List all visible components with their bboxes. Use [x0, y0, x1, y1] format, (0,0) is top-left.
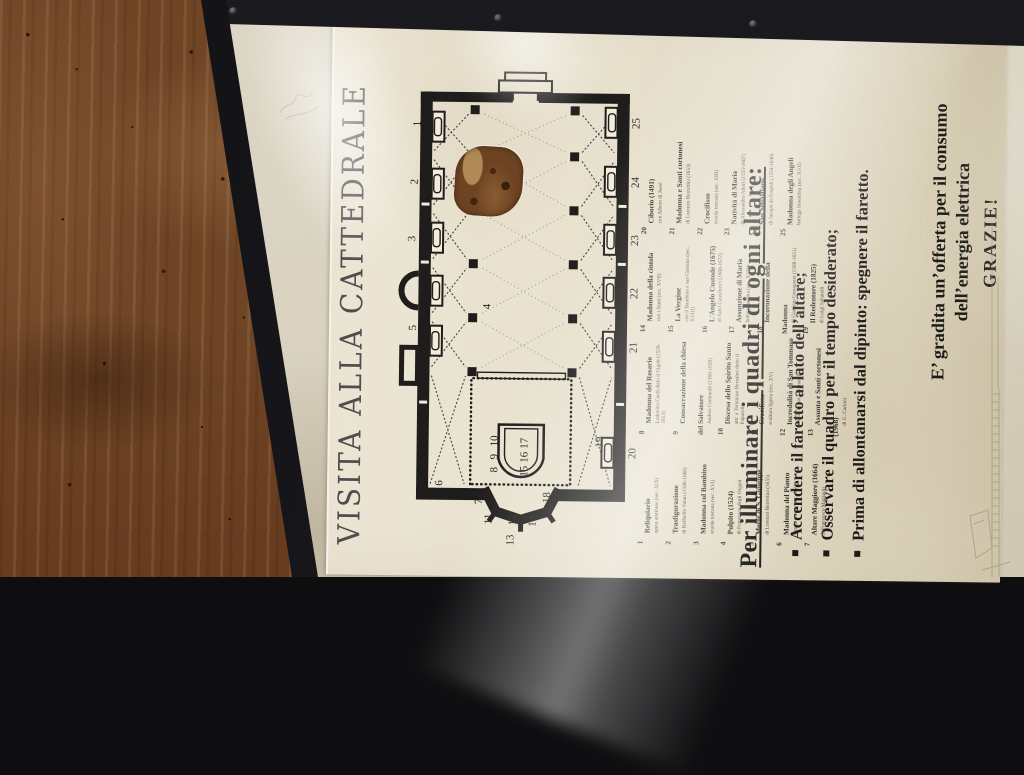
- plan-number-label: 16: [518, 451, 530, 462]
- bullet-square-icon: [854, 550, 860, 556]
- legend-item-title: La Vergine: [673, 287, 681, 321]
- plan-number-label: 6: [433, 480, 445, 486]
- legend-item-number: 12: [778, 424, 786, 435]
- legend-item-number: 2: [664, 533, 672, 544]
- legend-item-detail: Lodovico Cardi detto il Cigoli (1559-161…: [655, 334, 668, 423]
- instruction-bullet: Accendere il faretto al lato dell’altare…: [786, 168, 811, 556]
- plan-number-label: 14: [526, 515, 538, 526]
- plan-number-label: 1: [411, 120, 423, 126]
- legend-item-title: Consacrazione della chiesa del Salvatore: [678, 341, 704, 435]
- plan-number-label: 24: [629, 177, 641, 188]
- legend-item-title: Discesa dello Spirito Santo: [724, 342, 733, 424]
- instructions-heading: Per illuminare i quadri di ogni altare:: [736, 166, 768, 567]
- legend-item: 14Madonna della cintolacon i Santi (sec.…: [638, 236, 663, 332]
- legend-item: 9Consacrazione della chiesa del Salvator…: [671, 334, 714, 435]
- plan-number-label: 22: [628, 288, 640, 299]
- legend-item: 16L'Angelo Custode (1675)di Salvi Castel…: [700, 236, 725, 332]
- legend-item-detail: scuola toscana (sec. XIII): [713, 111, 720, 224]
- poster-sheet: Visita alla Cattedrale: [326, 0, 1007, 582]
- legend-item-number: 4: [719, 534, 727, 545]
- legend-item-title: Madonna della cintola: [646, 252, 655, 321]
- legend-item-number: 15: [666, 321, 674, 332]
- legend-item-title: Madonna col Bambino: [699, 464, 708, 534]
- legend-item: 20Ciborio (1491)con Albero di Jessé: [640, 110, 665, 234]
- legend-item: 22Crocifissoscuola toscana (sec. XIII): [695, 110, 720, 234]
- plan-number-label: 8: [488, 466, 500, 472]
- instruction-bullet-label: Osservare il quadro per il tempo desider…: [817, 228, 840, 540]
- bullet-square-icon: [823, 550, 829, 556]
- legend-item-number: 21: [668, 223, 676, 234]
- plan-number-label: 5: [406, 324, 418, 330]
- legend-item-detail: di Salvi Castellucci (1608-1672): [718, 237, 725, 322]
- plan-number-label: 2: [408, 178, 420, 184]
- instruction-bullet: Prima di allontanarsi dal dipinto: spegn…: [848, 169, 873, 557]
- legend-item-title: L'Angelo Custode (1675): [707, 245, 716, 321]
- instruction-bullet-label: Prima di allontanarsi dal dipinto: spegn…: [848, 169, 872, 541]
- screw-head-icon: [494, 14, 503, 23]
- legend-item-number: 14: [638, 321, 646, 332]
- legend-item-number: 25: [779, 224, 787, 235]
- plan-number-label: 19: [593, 436, 605, 447]
- plan-number-label: 20: [626, 448, 638, 459]
- instruction-bullet-label: Accendere il faretto al lato dell’altare…: [786, 271, 808, 539]
- plan-number-label: 21: [627, 342, 639, 353]
- legend-item-title: Madonna del Rosario: [644, 356, 653, 422]
- legend-item-number: 6: [775, 534, 783, 545]
- damage-patch: [452, 144, 524, 218]
- instruction-bullets: Accendere il faretto al lato dell’altare…: [786, 168, 884, 557]
- offer-line1: E’ gradita un’offerta per il consumo: [925, 51, 953, 431]
- plan-number-label: 18: [540, 491, 552, 502]
- sign-title: Visita alla Cattedrale: [331, 82, 372, 544]
- legend-item-detail: di Lorenzo Berrettini (1653): [686, 110, 693, 223]
- legend-item-title: Reliquiario: [643, 498, 651, 533]
- legend-item-number: 1: [636, 533, 644, 544]
- legend-item-number: 20: [640, 223, 648, 234]
- legend-item-number: 9: [671, 423, 679, 434]
- legend-item-title: Madonna e Santi cortonesi: [675, 141, 684, 223]
- legend-item-title: Trasfigurazione: [671, 485, 680, 534]
- plan-number-label: 7: [472, 498, 484, 504]
- legend-item-number: 17: [728, 322, 736, 333]
- instruction-bullet: Osservare il quadro per il tempo desider…: [817, 168, 842, 556]
- legend-item-detail: di Jacopo da Empoli (1554-1640): [769, 111, 776, 224]
- legend-item-number: 3: [692, 533, 700, 544]
- legend-item-title: Natività di Maria: [730, 170, 739, 224]
- legend-item-detail: con il Bambino e san Gaetano (sec. XVIII…: [684, 236, 697, 321]
- legend-item-detail: scultura lignea (sec. XV): [769, 335, 776, 424]
- legend-item-title: Incoronazione della Madonna: [763, 262, 789, 334]
- pencil-scribble: [276, 83, 324, 125]
- legend-item-title: Ciborio (1491): [647, 178, 656, 223]
- legend-item: 2Trasfigurazionedi Raffaello Vanni (1596…: [664, 440, 689, 544]
- legend-item-title: Pulpito (1524): [727, 490, 736, 533]
- legend-item: 15La Verginecon il Bambino e san Gaetano…: [666, 236, 697, 332]
- plan-number-label: 13: [504, 534, 516, 545]
- screw-head-icon: [229, 7, 238, 16]
- legend-item-number: 10: [717, 424, 725, 435]
- legend-item-detail: con i Santi (sec. XVII): [657, 236, 664, 321]
- underlying-sketch: [952, 218, 1024, 577]
- plan-number-label: 12: [506, 514, 518, 525]
- legend-item-number: 16: [700, 321, 708, 332]
- legend-item-detail: di Lorenzo Berrettini (1655): [765, 441, 772, 534]
- plan-number-label: 3: [406, 235, 418, 241]
- legend-column: 20Ciborio (1491)con Albero di Jessé21Mad…: [640, 110, 808, 236]
- legend-item-detail: di Raffaello Vanni (1596-1660): [682, 440, 689, 533]
- plan-number-label: 11: [482, 513, 494, 524]
- legend-item-detail: scuola toscana (sec. XVI): [710, 441, 717, 534]
- plan-number-label: 10: [488, 435, 500, 446]
- legend-item-title: Crocifisso: [702, 193, 710, 224]
- legend-item-detail: Andrea Commodi (1560-1638): [707, 335, 714, 424]
- legend-item: 1Reliquiarioopera aretinese (sec. XIX): [636, 440, 661, 544]
- plan-number-label: 15: [518, 465, 530, 476]
- plan-number-label: 17: [518, 437, 530, 448]
- legend-item: 3Madonna col Bambinoscuola toscana (sec.…: [692, 440, 717, 544]
- legend-item-number: 23: [723, 224, 731, 235]
- legend-item: 8Madonna del RosarioLodovico Cardi detto…: [637, 334, 668, 434]
- legend-item-number: 8: [637, 423, 645, 434]
- plan-number-label: 23: [629, 235, 641, 246]
- plan-number-label: 9: [488, 453, 500, 459]
- bullet-square-icon: [792, 550, 798, 556]
- plan-number-label: 25: [630, 118, 642, 129]
- legend-item-number: 22: [695, 223, 703, 234]
- plan-number-label: 4: [481, 303, 493, 309]
- legend-item-detail: con Albero di Jessé: [658, 110, 665, 223]
- screw-head-icon: [749, 20, 758, 29]
- legend-item-detail: opera aretinese (sec. XIX): [654, 440, 661, 533]
- legend-item: 21Madonna e Santi cortonesidi Lorenzo Be…: [668, 110, 693, 234]
